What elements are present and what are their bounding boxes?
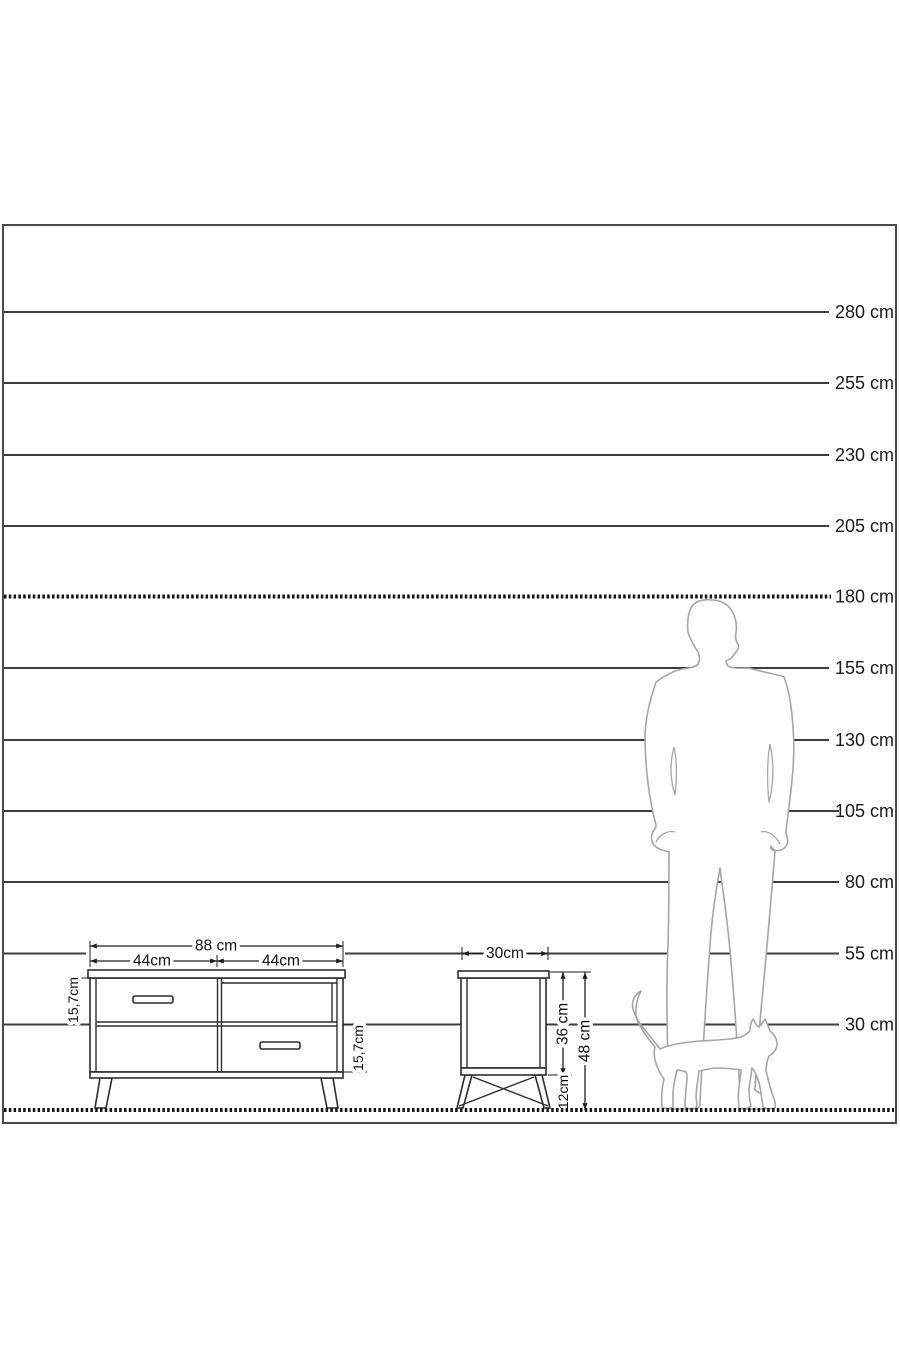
scale-label-280cm: 280 cm [835, 302, 894, 322]
scale-label-155cm: 155 cm [835, 658, 894, 678]
tv-stand-body [90, 978, 343, 1072]
scale-label-80cm: 80 cm [845, 872, 894, 892]
diagram-canvas: 88 cm 44cm 44cm 15,7cm 15,7cm 30cm 36 cm… [0, 0, 900, 1350]
cat-detail-dot [754, 1081, 756, 1083]
scale-label-30cm: 30 cm [845, 1015, 894, 1035]
tv-stand-bottom-drawer-handle [260, 1042, 300, 1049]
dim-label-tv-bottom-drawer-height: 15,7cm [350, 1025, 366, 1071]
scale-label-230cm: 230 cm [835, 445, 894, 465]
scale-label-180cm: 180 cm [835, 587, 894, 607]
scale-label-55cm: 55 cm [845, 944, 894, 964]
dim-label-tv-overall-width: 88 cm [195, 938, 237, 955]
nightstand-bottom-band [461, 1068, 546, 1075]
scale-label-130cm: 130 cm [835, 730, 894, 750]
nightstand-top-panel [458, 971, 549, 978]
dim-label-tv-left-width: 44cm [133, 953, 171, 970]
nightstand-body [461, 978, 546, 1068]
tv-stand-top-drawer-handle [133, 996, 173, 1003]
dim-label-nightstand-leg-height: 12cm [555, 1075, 571, 1109]
furniture-size-diagram: 88 cm 44cm 44cm 15,7cm 15,7cm 30cm 36 cm… [0, 0, 900, 1350]
scale-label-205cm: 205 cm [835, 516, 894, 536]
dim-label-nightstand-body-height: 36 cm [555, 1003, 572, 1045]
dim-label-nightstand-total-height: 48 cm [577, 1020, 594, 1062]
tv-stand-bottom-band [90, 1072, 343, 1078]
dim-label-tv-right-width: 44cm [262, 953, 300, 970]
dim-label-nightstand-width: 30cm [486, 945, 524, 962]
tv-stand-top-panel [88, 970, 345, 978]
scale-label-255cm: 255 cm [835, 373, 894, 393]
scale-label-105cm: 105 cm [835, 801, 894, 821]
dim-label-tv-top-drawer-height: 15,7cm [65, 977, 81, 1023]
